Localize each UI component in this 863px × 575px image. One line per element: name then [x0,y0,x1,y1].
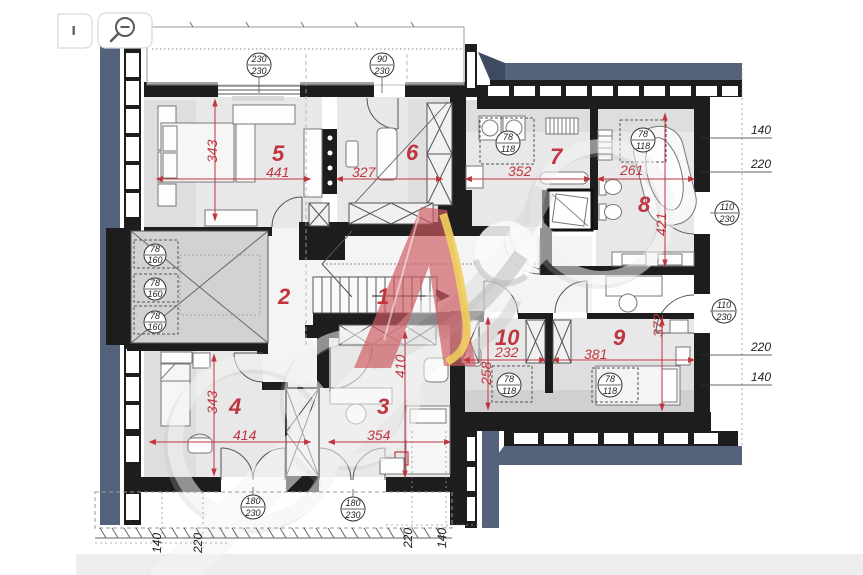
svg-text:78: 78 [503,132,513,142]
svg-text:160: 160 [147,255,162,265]
svg-text:230: 230 [373,66,389,76]
svg-text:160: 160 [147,289,162,299]
svg-text:372: 372 [650,313,666,337]
svg-text:118: 118 [603,386,617,396]
svg-text:5: 5 [272,141,285,166]
svg-text:140: 140 [751,123,771,137]
svg-text:90: 90 [377,54,387,64]
svg-text:352: 352 [508,163,532,179]
svg-text:8: 8 [638,192,651,217]
svg-text:258: 258 [478,361,494,386]
svg-text:220: 220 [191,533,205,554]
svg-text:140: 140 [435,528,449,548]
svg-text:441: 441 [266,164,289,180]
svg-text:160: 160 [147,322,162,332]
svg-text:1: 1 [377,284,389,309]
svg-text:78: 78 [150,244,160,254]
svg-text:220: 220 [401,528,415,549]
svg-text:78: 78 [150,278,160,288]
svg-text:78: 78 [605,374,615,384]
svg-text:414: 414 [233,427,257,443]
svg-text:118: 118 [502,386,516,396]
svg-text:410: 410 [392,354,408,378]
svg-text:230: 230 [718,214,734,224]
svg-text:354: 354 [367,427,391,443]
svg-text:140: 140 [150,533,164,553]
svg-text:220: 220 [750,157,771,171]
svg-text:3: 3 [377,394,389,419]
svg-text:7: 7 [550,144,564,169]
svg-text:78: 78 [504,374,514,384]
svg-text:381: 381 [584,346,607,362]
svg-text:2: 2 [277,284,291,309]
svg-text:230: 230 [344,510,360,520]
svg-text:343: 343 [204,139,220,163]
svg-text:261: 261 [619,162,643,178]
svg-text:110: 110 [720,202,734,212]
svg-text:343: 343 [204,390,220,414]
svg-text:220: 220 [750,340,771,354]
svg-text:230: 230 [715,312,731,322]
svg-text:4: 4 [228,394,241,419]
svg-text:230: 230 [244,508,260,518]
svg-text:421: 421 [653,213,669,236]
svg-text:327: 327 [352,164,377,180]
svg-text:9: 9 [613,325,626,350]
svg-text:180: 180 [345,498,360,508]
svg-text:110: 110 [717,300,731,310]
svg-text:230: 230 [250,54,266,64]
svg-text:232: 232 [494,344,519,360]
svg-text:118: 118 [636,141,650,151]
svg-text:230: 230 [250,66,266,76]
svg-text:6: 6 [406,140,419,165]
svg-text:78: 78 [638,129,648,139]
svg-text:118: 118 [501,144,515,154]
svg-text:78: 78 [150,311,160,321]
svg-text:140: 140 [751,370,771,384]
svg-text:180: 180 [245,496,260,506]
